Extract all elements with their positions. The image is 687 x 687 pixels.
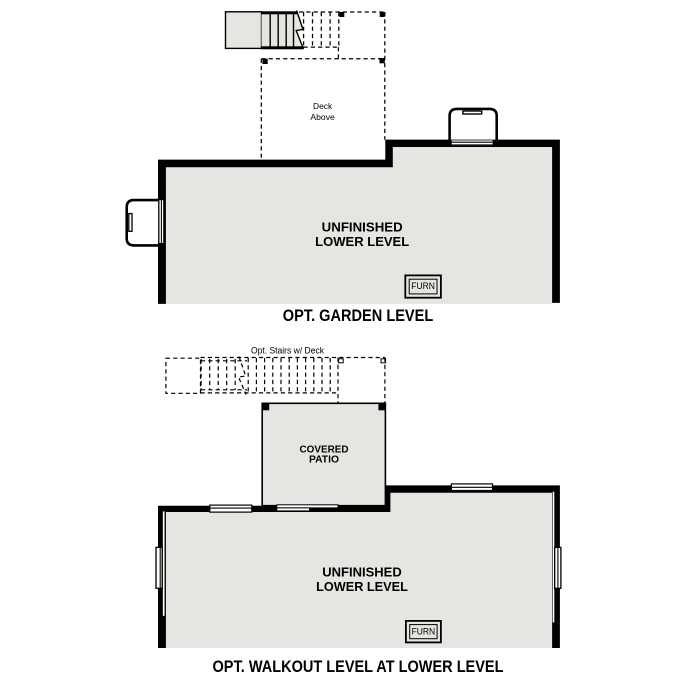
svg-text:OPT. WALKOUT LEVEL AT LOWER LE: OPT. WALKOUT LEVEL AT LOWER LEVEL (213, 657, 504, 676)
svg-text:Opt. Stairs w/ Deck: Opt. Stairs w/ Deck (251, 345, 324, 355)
svg-text:UNFINISHED: UNFINISHED (322, 564, 402, 579)
svg-text:Above: Above (310, 112, 335, 122)
svg-text:UNFINISHED: UNFINISHED (322, 220, 403, 235)
svg-text:PATIO: PATIO (309, 454, 339, 465)
svg-text:LOWER LEVEL: LOWER LEVEL (316, 579, 408, 594)
svg-text:OPT. GARDEN LEVEL: OPT. GARDEN LEVEL (283, 306, 434, 325)
svg-text:FURN: FURN (411, 281, 435, 291)
svg-text:LOWER LEVEL: LOWER LEVEL (315, 234, 409, 249)
svg-text:FURN: FURN (412, 627, 436, 637)
svg-text:Deck: Deck (313, 101, 333, 111)
